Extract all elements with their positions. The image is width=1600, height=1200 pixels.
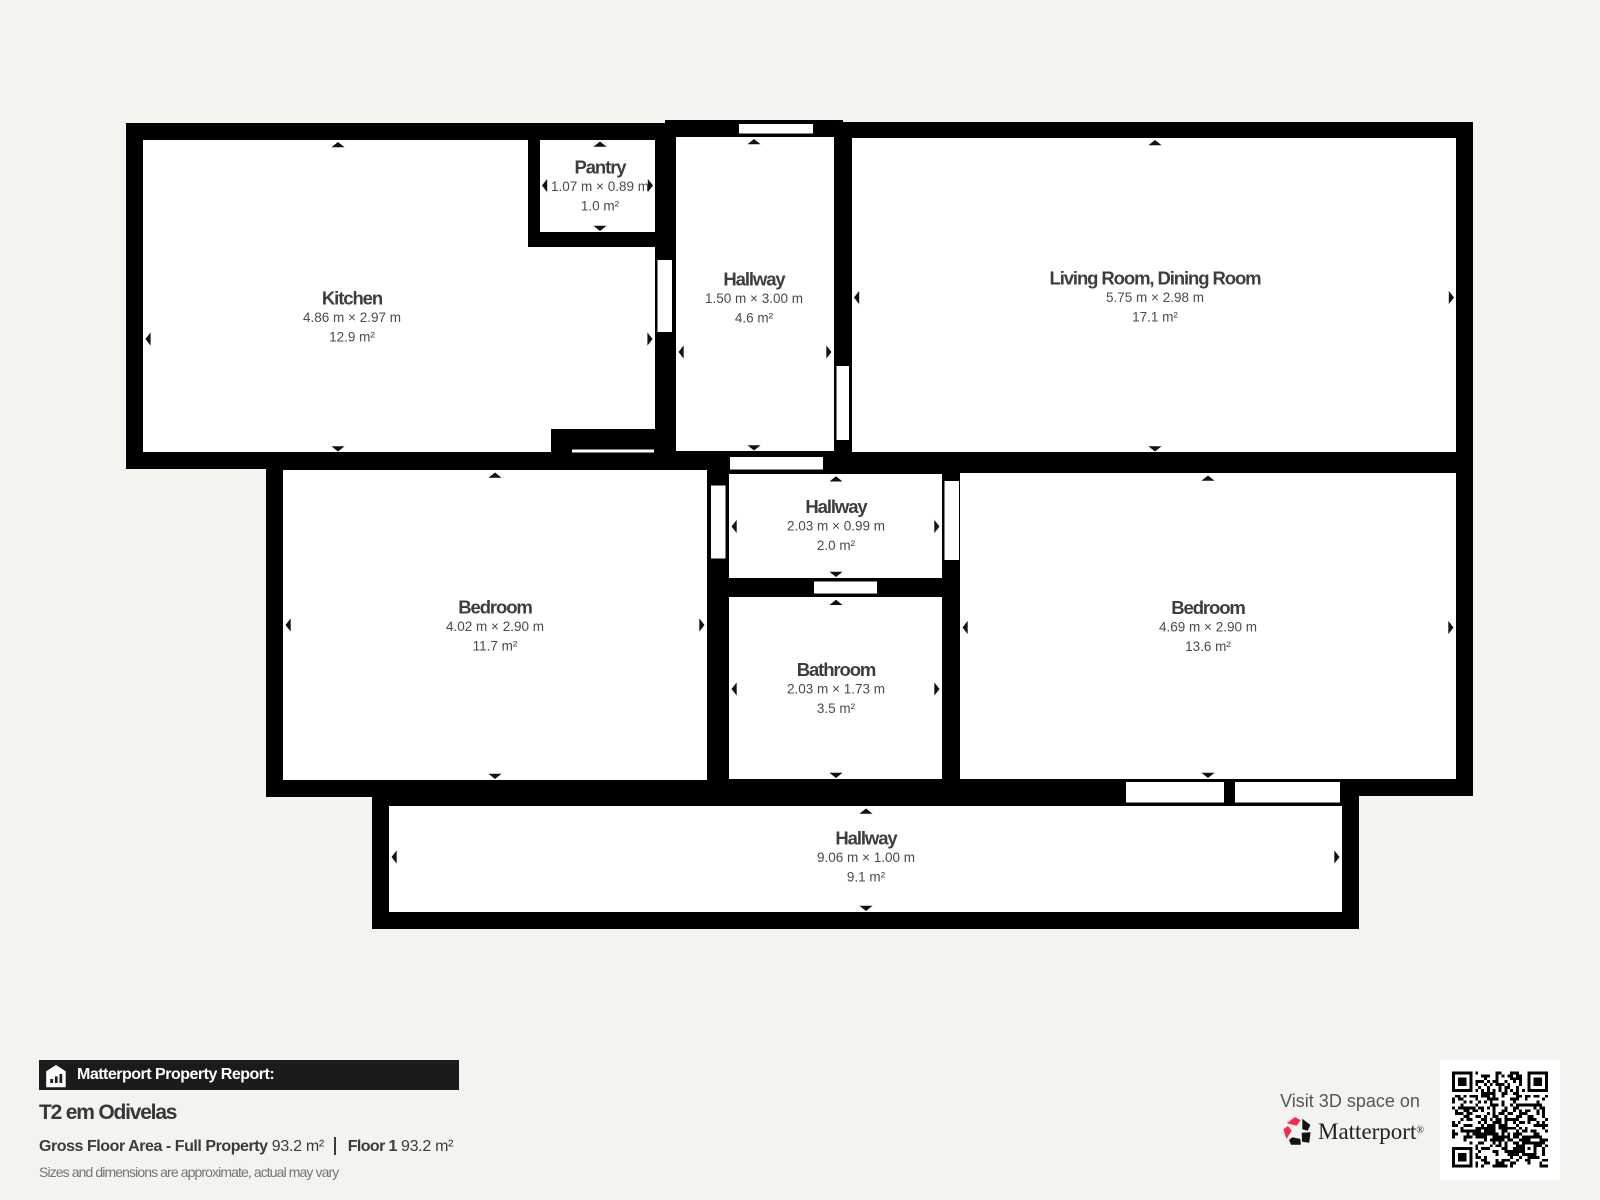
svg-text:17.1 m²: 17.1 m²	[1132, 309, 1178, 324]
svg-text:5.75 m × 2.98 m: 5.75 m × 2.98 m	[1106, 290, 1204, 305]
svg-text:1.50 m × 3.00 m: 1.50 m × 3.00 m	[705, 291, 803, 306]
svg-text:4.02 m × 2.90 m: 4.02 m × 2.90 m	[446, 619, 544, 634]
svg-text:Bathroom: Bathroom	[797, 659, 876, 680]
svg-text:9.1 m²: 9.1 m²	[847, 869, 886, 884]
svg-text:12.9 m²: 12.9 m²	[329, 329, 375, 344]
svg-text:1.07 m × 0.89 m: 1.07 m × 0.89 m	[551, 179, 649, 194]
svg-text:4.69 m × 2.90 m: 4.69 m × 2.90 m	[1159, 619, 1257, 634]
svg-text:Bedroom: Bedroom	[1171, 597, 1245, 618]
svg-text:Hallway: Hallway	[723, 268, 786, 289]
svg-text:13.6 m²: 13.6 m²	[1185, 639, 1231, 654]
svg-text:9.06 m × 1.00 m: 9.06 m × 1.00 m	[817, 850, 915, 865]
svg-text:2.03 m × 0.99 m: 2.03 m × 0.99 m	[787, 518, 885, 533]
svg-text:Kitchen: Kitchen	[322, 287, 383, 308]
svg-text:Hallway: Hallway	[805, 496, 868, 517]
svg-text:2.0 m²: 2.0 m²	[817, 538, 856, 553]
svg-text:Living Room, Dining Room: Living Room, Dining Room	[1050, 267, 1262, 288]
svg-text:4.6 m²: 4.6 m²	[735, 310, 774, 325]
svg-text:4.86 m × 2.97 m: 4.86 m × 2.97 m	[303, 310, 401, 325]
svg-text:Hallway: Hallway	[835, 827, 898, 848]
svg-text:Pantry: Pantry	[575, 156, 628, 177]
svg-text:Bedroom: Bedroom	[458, 596, 532, 617]
svg-text:11.7 m²: 11.7 m²	[473, 638, 518, 653]
svg-text:1.0 m²: 1.0 m²	[581, 198, 620, 213]
svg-text:3.5 m²: 3.5 m²	[817, 701, 856, 716]
svg-text:2.03 m × 1.73 m: 2.03 m × 1.73 m	[787, 681, 885, 696]
